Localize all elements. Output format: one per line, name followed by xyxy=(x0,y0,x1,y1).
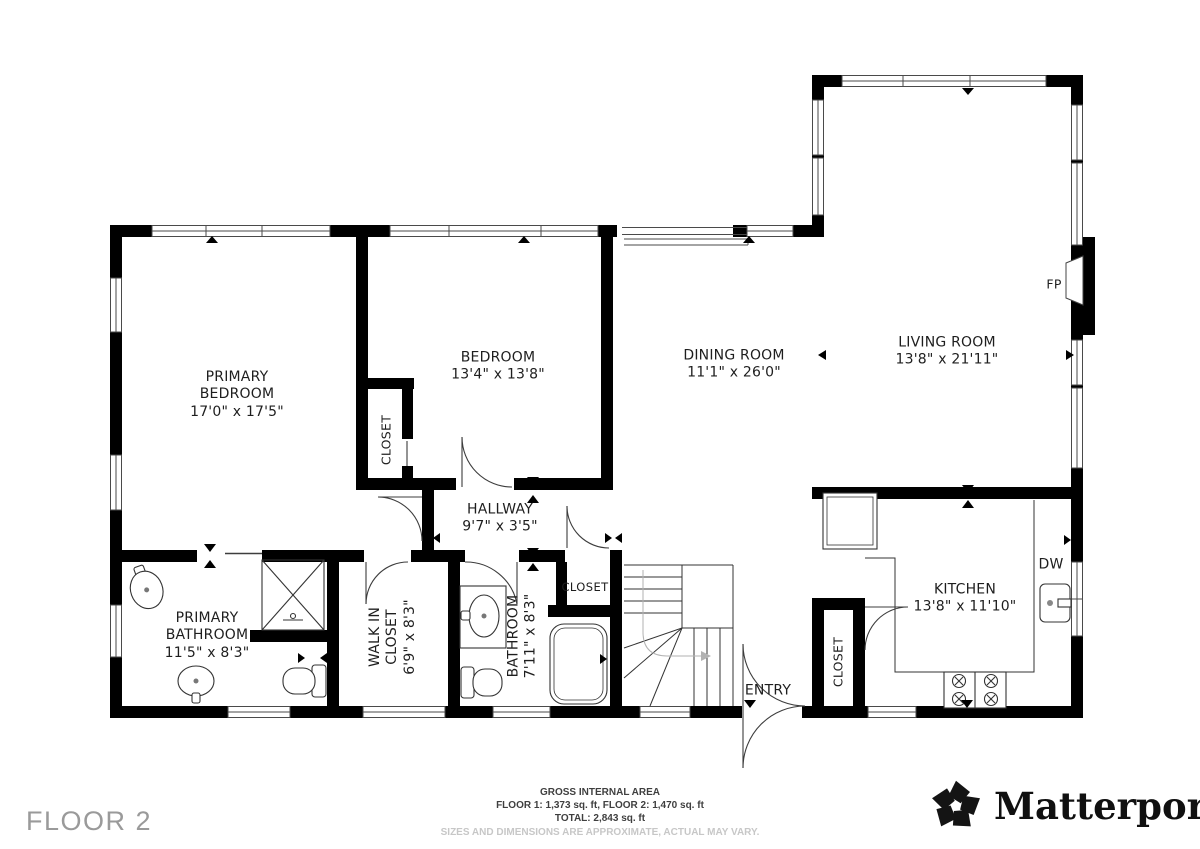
room-dims: 11'1" x 26'0" xyxy=(683,365,784,382)
brand-name-text: Matterport xyxy=(994,784,1200,828)
total-area: TOTAL: 2,843 sq. ft xyxy=(441,812,760,825)
floor-label: FLOOR 2 xyxy=(26,806,152,837)
floor-areas: FLOOR 1: 1,373 sq. ft, FLOOR 2: 1,470 sq… xyxy=(441,799,760,812)
sink-icon xyxy=(178,666,214,703)
closet-label-hallway: CLOSET xyxy=(561,580,608,594)
room-name: BEDROOM xyxy=(451,350,545,367)
room-label-kitchen: KITCHEN 13'8" x 11'10" xyxy=(914,582,1017,617)
toilet-icon xyxy=(283,665,326,697)
room-name: KITCHEN xyxy=(914,582,1017,599)
door-arc-icon xyxy=(567,506,609,548)
room-name: DINING ROOM xyxy=(683,348,784,365)
disclaimer: SIZES AND DIMENSIONS ARE APPROXIMATE, AC… xyxy=(441,826,760,839)
room-label-primary-bathroom: PRIMARY BATHROOM 11'5" x 8'3" xyxy=(144,610,270,662)
bathtub-icon xyxy=(550,624,607,704)
closet-label-bedroom: CLOSET xyxy=(378,415,394,465)
room-dims: 9'7" x 3'5" xyxy=(462,519,538,536)
room-label-bedroom: BEDROOM 13'4" x 13'8" xyxy=(451,350,545,385)
sink-icon xyxy=(460,586,506,648)
fireplace-label: FP xyxy=(1046,276,1061,292)
door-arc-icon xyxy=(743,706,805,768)
matterport-pinwheel-icon xyxy=(928,778,984,834)
floorplan-canvas: PRIMARY BEDROOM 17'0" x 17'5" BEDROOM 13… xyxy=(0,0,1200,849)
room-dims: 17'0" x 17'5" xyxy=(177,404,297,421)
room-dims: 13'4" x 13'8" xyxy=(451,367,545,384)
stairs-icon xyxy=(624,565,733,706)
toilet-icon xyxy=(461,667,502,698)
room-dims: 13'8" x 11'10" xyxy=(914,599,1017,616)
room-name: BATHROOM xyxy=(506,594,523,679)
kitchen-sink-icon xyxy=(1040,584,1071,622)
sink-icon xyxy=(123,561,168,613)
room-name: LIVING ROOM xyxy=(896,335,999,352)
door-arc-icon xyxy=(378,497,422,541)
room-label-living-room: LIVING ROOM 13'8" x 21'11" xyxy=(896,335,999,370)
room-dims: 13'8" x 21'11" xyxy=(896,352,999,369)
entry-label: ENTRY xyxy=(745,682,791,699)
closet-label-kitchen: CLOSET xyxy=(830,637,846,687)
room-name: HALLWAY xyxy=(462,502,538,519)
room-dims: 7'11" x 8'3" xyxy=(523,594,540,679)
stove-icon xyxy=(944,672,1006,708)
fireplace-icon xyxy=(1066,256,1083,305)
dishwasher-label: DW xyxy=(1038,556,1063,573)
room-dims: 11'5" x 8'3" xyxy=(144,645,270,662)
room-label-bathroom: BATHROOM 7'11" x 8'3" xyxy=(506,594,541,679)
glass-wall xyxy=(622,228,748,246)
stairs-direction-arrow-icon xyxy=(701,651,711,661)
brand-logo: Matterport® xyxy=(928,778,1200,834)
door-arc-icon xyxy=(865,607,908,650)
gross-area-title: GROSS INTERNAL AREA xyxy=(441,786,760,799)
room-label-walk-in-closet: WALK IN CLOSET 6'9" x 8'3" xyxy=(367,596,419,678)
area-summary: GROSS INTERNAL AREA FLOOR 1: 1,373 sq. f… xyxy=(441,786,760,839)
refrigerator-icon xyxy=(823,493,877,549)
room-name: PRIMARY BEDROOM xyxy=(177,369,297,404)
shower-icon xyxy=(262,560,324,630)
room-name: PRIMARY BATHROOM xyxy=(144,610,270,645)
room-dims: 6'9" x 8'3" xyxy=(402,596,419,678)
door-arc-icon xyxy=(462,437,512,487)
room-label-dining-room: DINING ROOM 11'1" x 26'0" xyxy=(683,348,784,383)
room-label-primary-bedroom: PRIMARY BEDROOM 17'0" x 17'5" xyxy=(177,369,297,421)
room-name: WALK IN CLOSET xyxy=(367,596,402,678)
brand-name: Matterport® xyxy=(994,784,1200,828)
floorplan-drawing xyxy=(0,0,1200,849)
room-label-hallway: HALLWAY 9'7" x 3'5" xyxy=(462,502,538,537)
